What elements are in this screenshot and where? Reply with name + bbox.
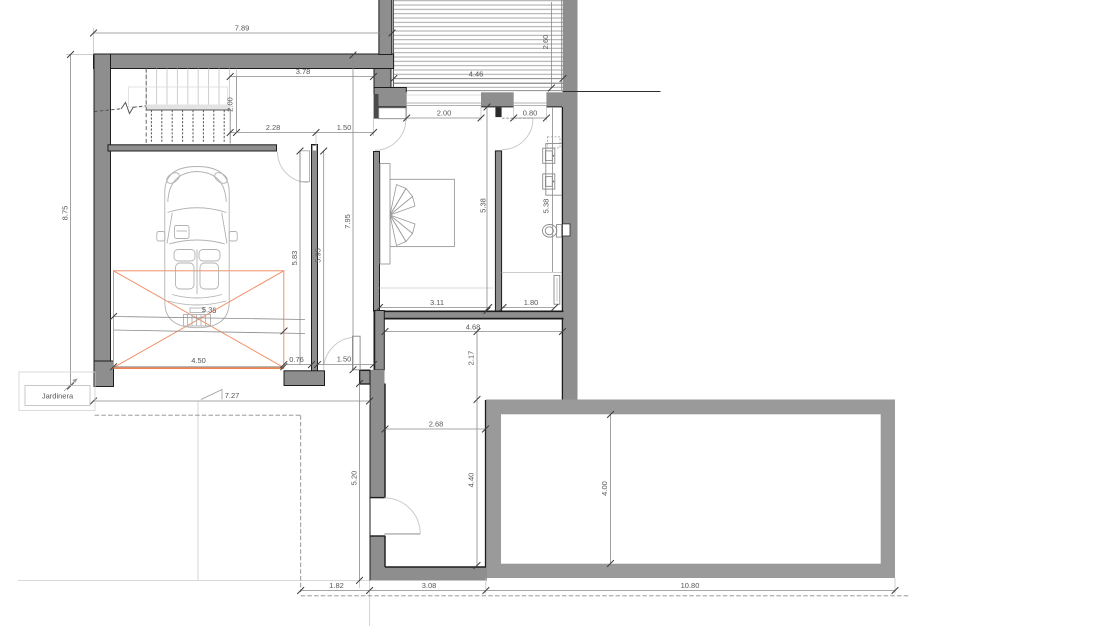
svg-text:0.80: 0.80 — [523, 109, 538, 118]
svg-text:10.80: 10.80 — [681, 581, 700, 590]
svg-text:5.20: 5.20 — [350, 471, 359, 486]
svg-text:2.28: 2.28 — [266, 123, 281, 132]
svg-text:4.46: 4.46 — [469, 70, 484, 79]
svg-text:3.08: 3.08 — [422, 581, 437, 590]
svg-text:5.83: 5.83 — [290, 251, 299, 266]
svg-text:5.38: 5.38 — [479, 198, 488, 213]
svg-text:5.35: 5.35 — [202, 305, 217, 315]
svg-text:0.76: 0.76 — [289, 355, 304, 364]
svg-text:7.27: 7.27 — [225, 391, 240, 400]
svg-text:4.50: 4.50 — [191, 356, 206, 365]
svg-text:1.50: 1.50 — [337, 355, 352, 364]
svg-text:2.00: 2.00 — [437, 109, 452, 118]
svg-text:2.60: 2.60 — [541, 35, 550, 50]
svg-text:Jardinera: Jardinera — [42, 392, 74, 401]
svg-text:7.95: 7.95 — [343, 214, 352, 229]
svg-text:8.75: 8.75 — [61, 206, 70, 221]
svg-text:3.11: 3.11 — [430, 298, 444, 307]
svg-text:4.00: 4.00 — [600, 481, 609, 496]
svg-text:5.95: 5.95 — [314, 248, 323, 263]
svg-text:5.38: 5.38 — [542, 199, 551, 214]
svg-text:3.78: 3.78 — [296, 67, 311, 76]
svg-text:2.00: 2.00 — [225, 97, 234, 112]
svg-text:1.50: 1.50 — [337, 123, 352, 132]
svg-text:1.82: 1.82 — [329, 581, 344, 590]
svg-text:7.89: 7.89 — [235, 24, 250, 33]
svg-text:4.40: 4.40 — [467, 473, 476, 488]
svg-text:1.80: 1.80 — [524, 298, 539, 307]
svg-text:2.17: 2.17 — [467, 351, 476, 366]
svg-text:2.68: 2.68 — [429, 420, 444, 429]
